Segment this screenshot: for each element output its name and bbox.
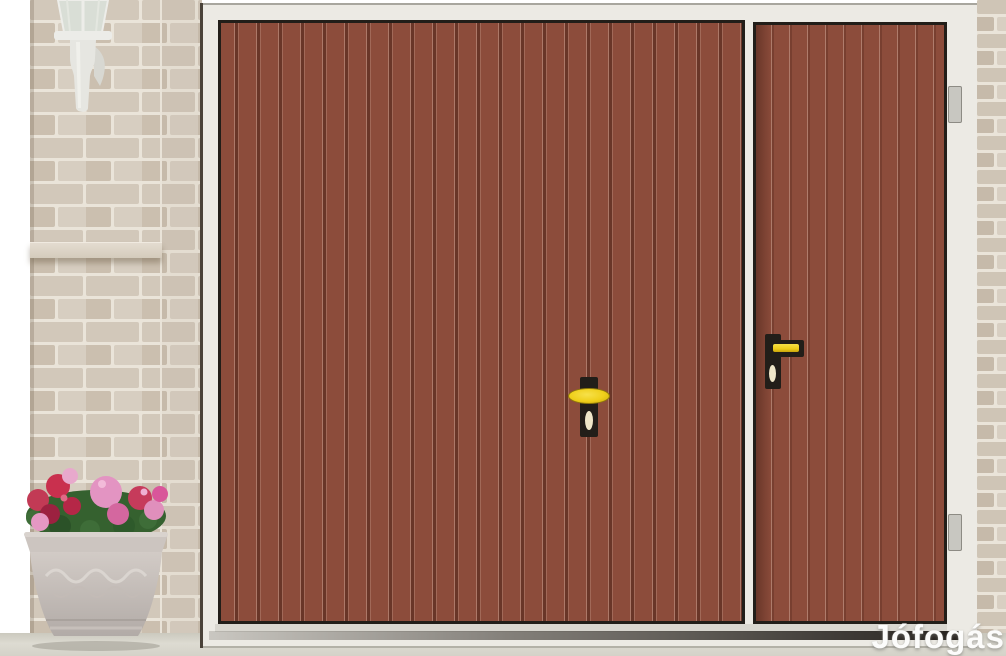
garage-door-panel <box>218 20 745 624</box>
hinge-top <box>948 86 962 123</box>
flower <box>31 513 49 531</box>
flower <box>62 468 78 484</box>
brick-texture <box>977 0 1006 640</box>
pot-shadow <box>32 641 160 651</box>
side-handle-keyhole <box>769 365 776 382</box>
threshold-shadow <box>209 631 961 640</box>
garage-door-unit <box>200 3 977 648</box>
garage-handle-yellow-grip <box>568 388 610 404</box>
lantern-bracket <box>94 46 105 86</box>
planter-graphic <box>20 458 172 652</box>
watermark-logo: Jófogás <box>871 620 1005 653</box>
garage-handle-keyhole <box>585 411 593 430</box>
flower <box>152 486 168 502</box>
flower <box>107 503 129 525</box>
scene: Jófogás <box>0 0 1006 656</box>
flower-planter <box>20 458 172 652</box>
side-handle-yellow-lever <box>773 344 799 352</box>
wall-lantern-graphic <box>50 0 116 118</box>
wall-lantern <box>50 0 116 118</box>
frame-top-edge <box>203 3 977 5</box>
pot-body <box>30 552 162 636</box>
frame-bottom-shadow <box>203 646 977 648</box>
hinge-bottom <box>948 514 962 551</box>
flower <box>144 500 164 520</box>
lantern-body <box>70 40 96 112</box>
brick-wall-right <box>977 0 1006 640</box>
brick-ledge <box>30 242 162 258</box>
side-door-panel <box>753 22 947 624</box>
lantern-base-plate <box>54 31 112 40</box>
